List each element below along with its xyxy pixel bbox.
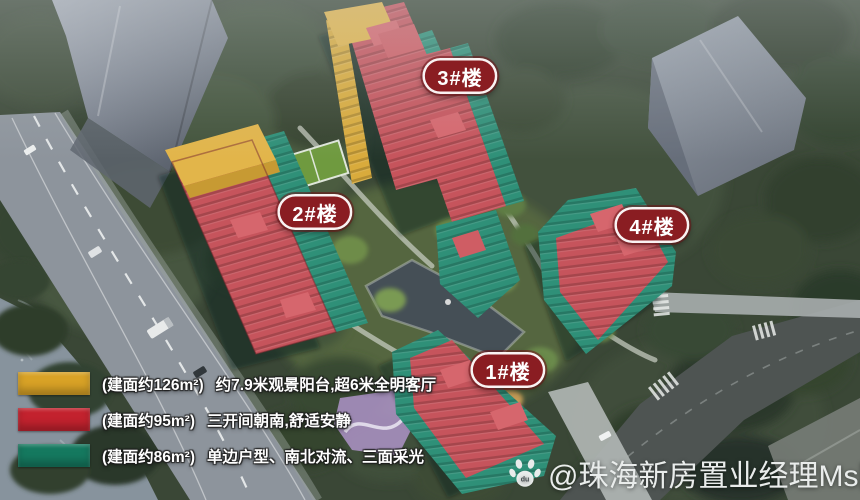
legend-features-95: 三开间朝南,舒适安静 bbox=[207, 413, 351, 430]
building-3-badge: 3#楼 bbox=[422, 58, 497, 94]
legend-area-126: (建面约126m²) bbox=[102, 377, 204, 394]
legend-swatch-teal bbox=[18, 444, 90, 467]
building-1-badge-label: 1#楼 bbox=[485, 356, 530, 385]
building-4-badge: 4#楼 bbox=[614, 207, 689, 243]
legend-features-126: 约7.9米观景阳台,超6米全明客厅 bbox=[216, 377, 436, 394]
watermark-handle: @珠海新房置业经理Ms陈 bbox=[548, 451, 860, 495]
legend-swatch-red bbox=[18, 408, 90, 431]
building-2-badge-label: 2#楼 bbox=[292, 198, 337, 227]
building-3-badge-label: 3#楼 bbox=[437, 62, 482, 91]
real-estate-aerial-promo-image: 3#楼 2#楼 4#楼 1#楼 (建面约126m²)约7.9米观景阳台,超6米全… bbox=[0, 0, 860, 500]
legend-row-126: (建面约126m²)约7.9米观景阳台,超6米全明客厅 bbox=[18, 372, 436, 395]
legend-features-86: 单边户型、南北对流、三面采光 bbox=[207, 449, 424, 466]
watermark: du @珠海新房置业经理Ms陈 bbox=[509, 451, 860, 495]
legend-swatch-yellow bbox=[18, 372, 90, 395]
building-2-badge: 2#楼 bbox=[277, 194, 352, 230]
legend-row-86: (建面约86m²)单边户型、南北对流、三面采光 bbox=[18, 444, 436, 467]
legend: (建面约126m²)约7.9米观景阳台,超6米全明客厅 (建面约95m²)三开间… bbox=[18, 372, 436, 467]
baidu-paw-icon: du bbox=[509, 457, 541, 489]
legend-text-95: (建面约95m²)三开间朝南,舒适安静 bbox=[102, 409, 351, 431]
legend-area-95: (建面约95m²) bbox=[102, 413, 195, 430]
building-4-badge-label: 4#楼 bbox=[629, 211, 674, 240]
legend-area-86: (建面约86m²) bbox=[102, 449, 195, 466]
legend-row-95: (建面约95m²)三开间朝南,舒适安静 bbox=[18, 408, 436, 431]
legend-text-126: (建面约126m²)约7.9米观景阳台,超6米全明客厅 bbox=[102, 373, 436, 395]
building-1-badge: 1#楼 bbox=[470, 352, 545, 388]
legend-text-86: (建面约86m²)单边户型、南北对流、三面采光 bbox=[102, 445, 424, 467]
svg-text:du: du bbox=[521, 476, 530, 483]
